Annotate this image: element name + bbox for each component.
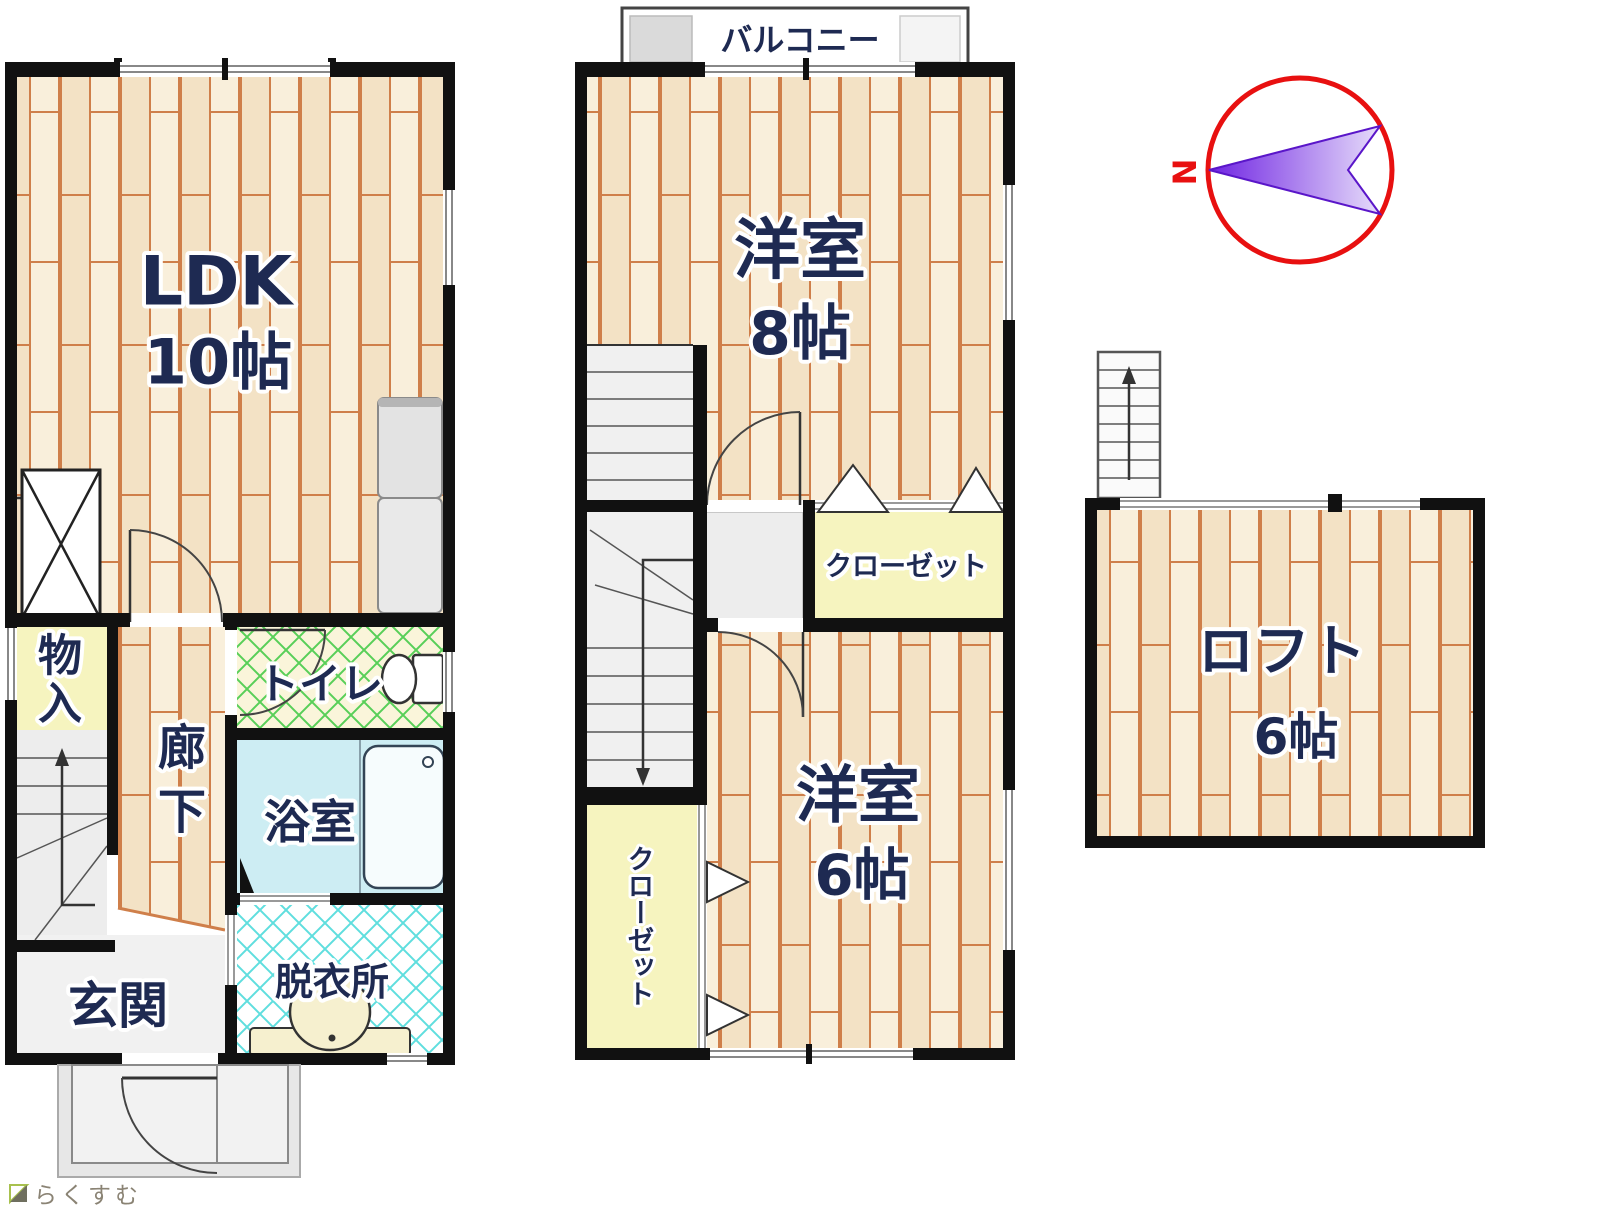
first-floor: LDK 10帖 物 入 廊 下 トイレ 浴室 脱衣所 玄関 [5, 58, 455, 1177]
ldk-label: LDK [140, 243, 295, 322]
loft-ladder [1098, 352, 1160, 498]
window [443, 190, 455, 285]
entrance-label: 玄関 [68, 977, 168, 1035]
storage-label-char1: 物 [38, 631, 82, 682]
refrigerator-space-icon [14, 470, 100, 618]
logo-text: らくすむ [34, 1183, 142, 1209]
sliding-door [240, 893, 330, 905]
balcony-label: バルコニー [720, 21, 879, 59]
toilet-label: トイレ [257, 660, 383, 709]
rakusumu-logo: らくすむ [10, 1183, 142, 1209]
compass: N [1166, 78, 1392, 262]
sliding-door [225, 915, 237, 985]
compass-north-label: N [1166, 159, 1204, 186]
loft-label: ロフト [1198, 620, 1366, 685]
window [387, 1053, 427, 1065]
room8-label: 洋室 [734, 212, 866, 289]
balcony: バルコニー [622, 8, 968, 70]
window [443, 652, 455, 712]
stairs-2f [587, 345, 693, 787]
bathroom-label: 浴室 [264, 795, 356, 849]
kitchen-counter [378, 398, 442, 613]
floor-plan-svg: LDK 10帖 物 入 廊 下 トイレ 浴室 脱衣所 玄関 バルコニー [0, 0, 1600, 1216]
loft-size-label: 6帖 [1254, 708, 1339, 766]
closet6-label: クローゼット [623, 845, 654, 1007]
window [5, 628, 17, 700]
window [1003, 790, 1015, 950]
window [1003, 185, 1015, 320]
room8-size-label: 8帖 [749, 299, 851, 369]
loft-floor: ロフト 6帖 [1085, 352, 1485, 848]
room6-floor [707, 632, 1003, 1048]
room6-label: 洋室 [796, 759, 920, 832]
ldk-size-label: 10帖 [144, 326, 292, 399]
room6-size-label: 6帖 [815, 844, 910, 909]
stair-landing [698, 512, 803, 620]
dressing-room-label: 脱衣所 [275, 960, 389, 1004]
floor-plan-image: LDK 10帖 物 入 廊 下 トイレ 浴室 脱衣所 玄関 バルコニー [0, 0, 1600, 1216]
closet8-label: クローゼット [825, 552, 987, 583]
loft-opening-rail [1120, 498, 1420, 510]
corridor-label-char2: 下 [158, 784, 206, 840]
corridor-floor [118, 627, 225, 930]
storage-label-char2: 入 [38, 679, 82, 730]
entrance-porch [58, 1065, 300, 1177]
compass-needle-icon [1209, 126, 1380, 214]
second-floor: バルコニー [575, 8, 1015, 1064]
window [120, 58, 330, 80]
toilet-bowl-icon [382, 655, 443, 703]
corridor-label-char1: 廊 [158, 720, 206, 776]
